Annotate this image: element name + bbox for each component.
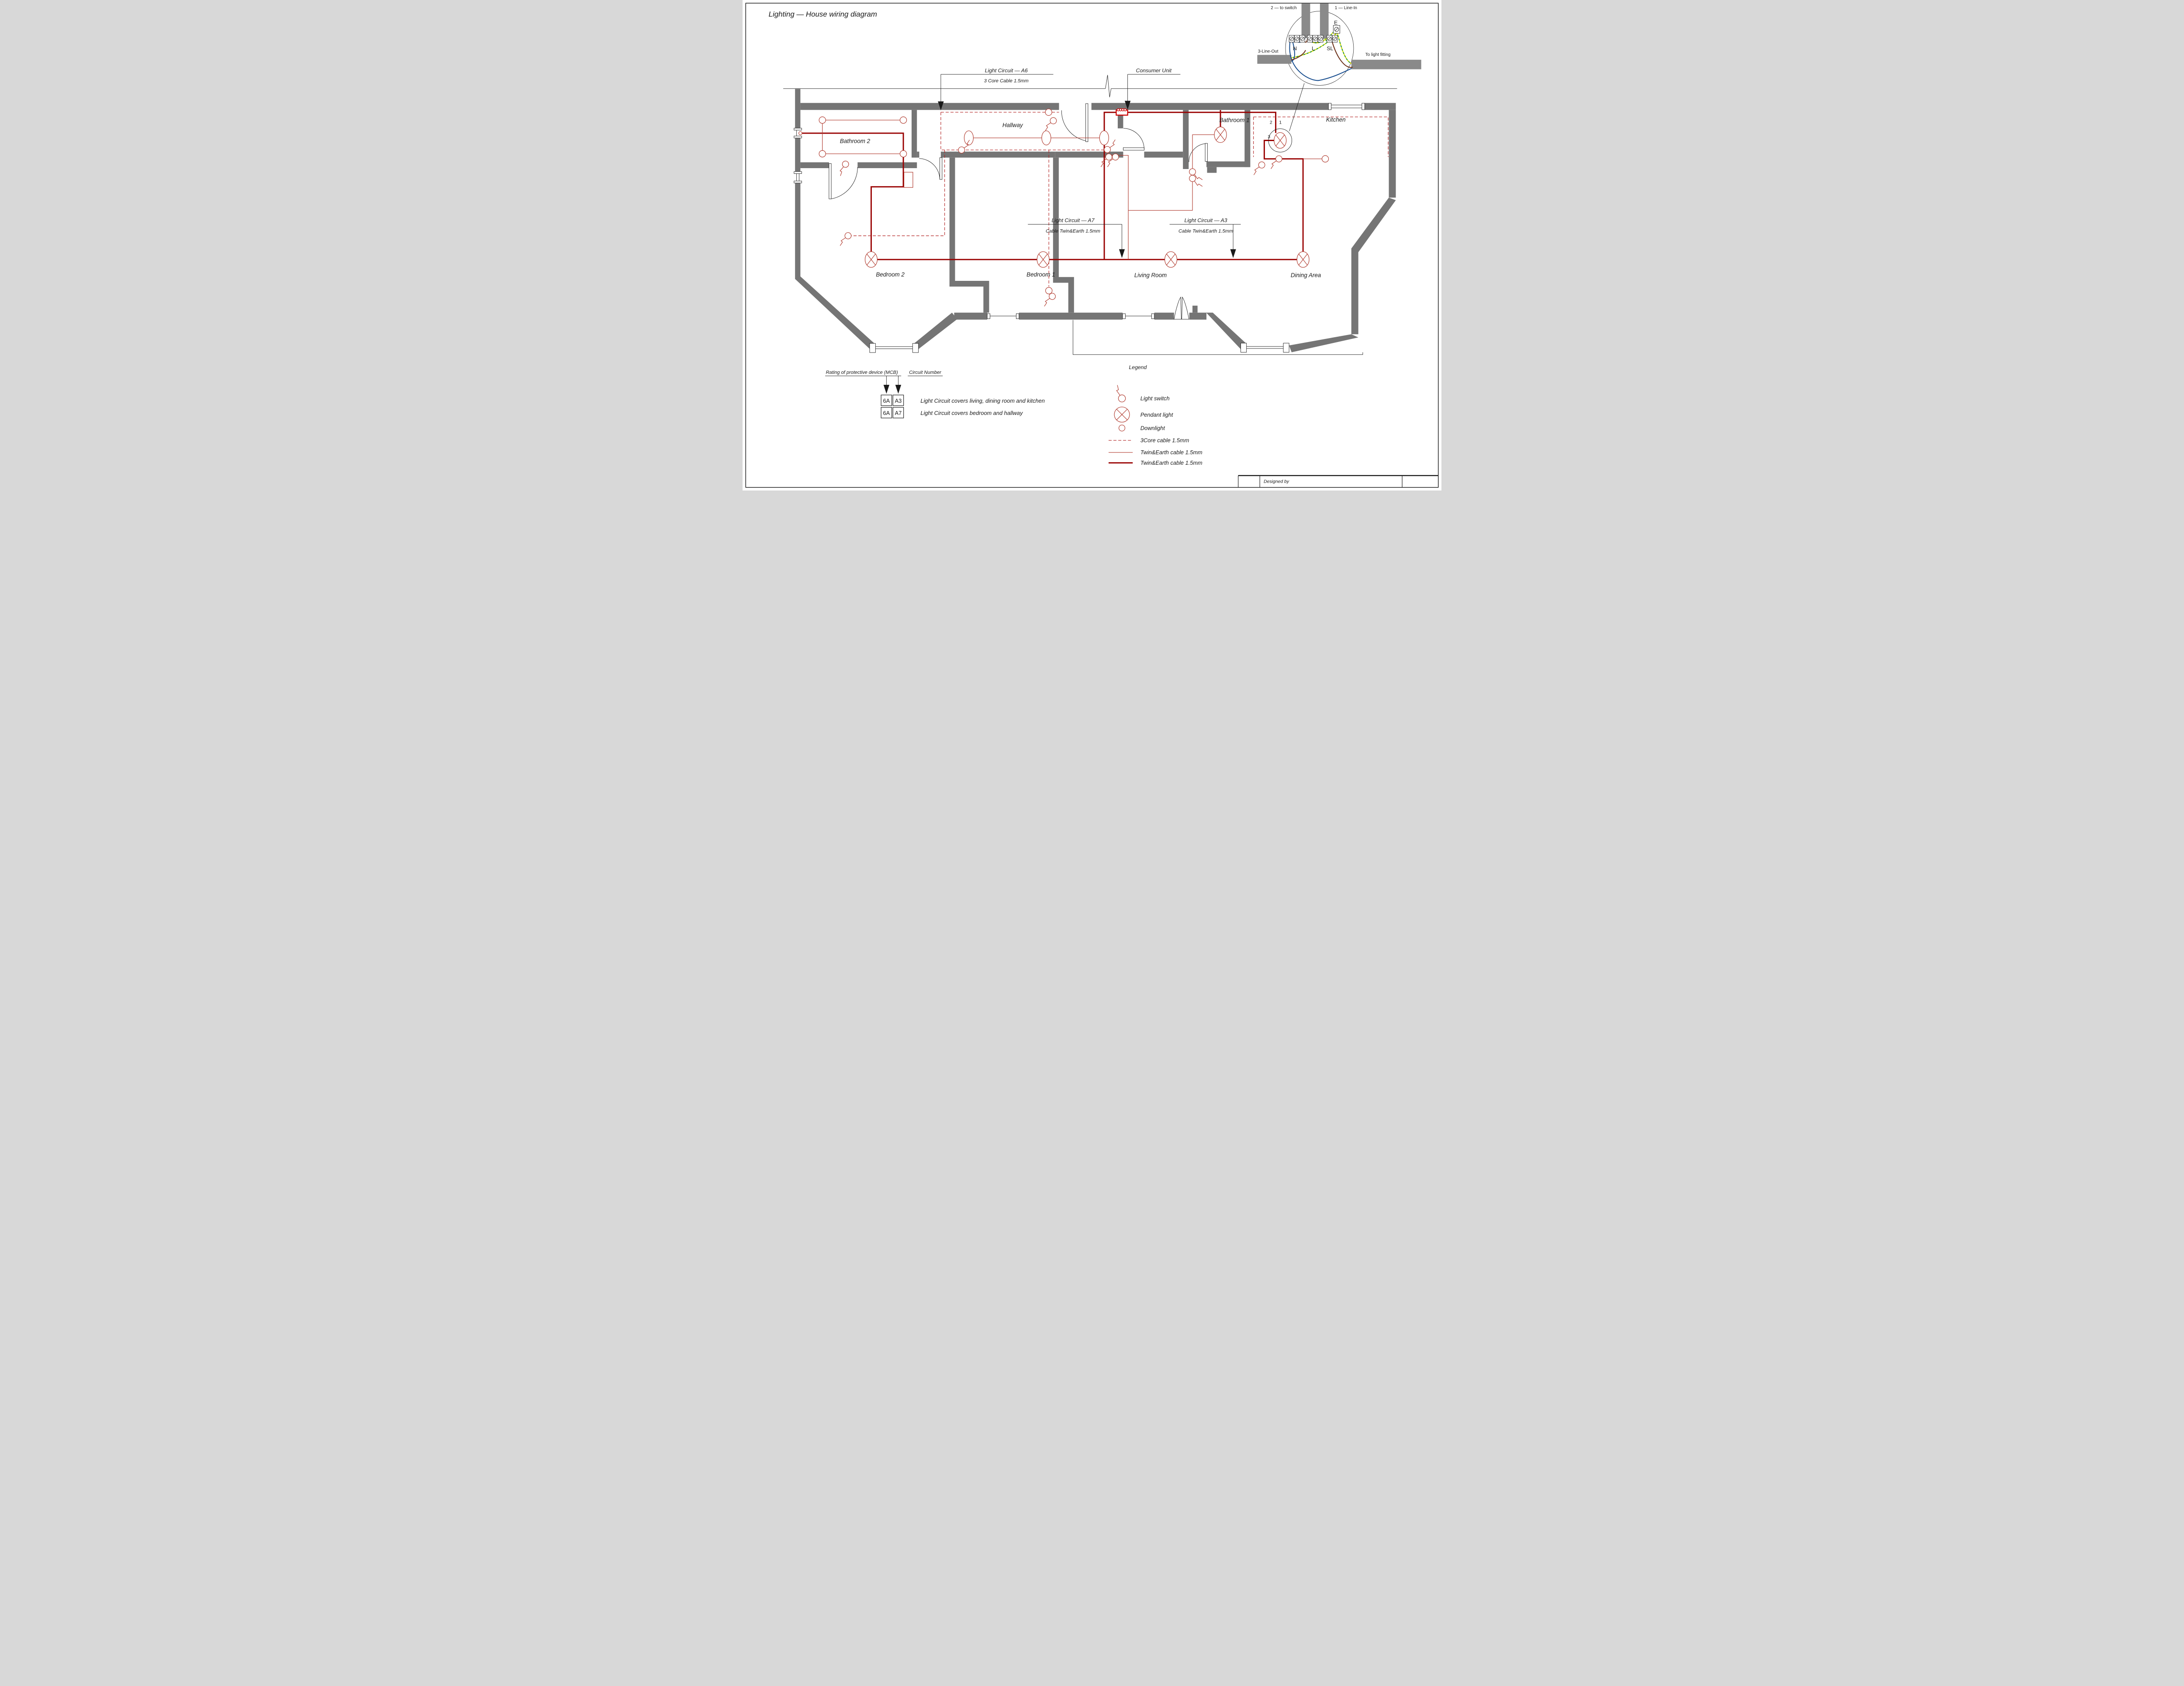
pendant-symbol — [865, 252, 877, 267]
downlight-symbol — [900, 150, 907, 157]
room-label-livingroom: Living Room — [1134, 272, 1167, 278]
terminal-screw — [1300, 35, 1305, 42]
terminal-screw — [1332, 35, 1337, 42]
mcb-row1-circuit: A3 — [895, 397, 902, 404]
rose-terminal-e-label: E — [1334, 20, 1337, 26]
rose-terminal-sl-label: SL — [1327, 45, 1333, 52]
a3-line2: Cable Twin&Earth 1.5mm — [1178, 228, 1233, 234]
pendant-symbol — [1297, 252, 1309, 267]
diagram-canvas: Lighting — House wiring diagram — [743, 0, 1441, 491]
pendant-symbol — [1274, 132, 1286, 148]
rose-label-to-switch: 2 — to switch — [1271, 6, 1296, 10]
patio-outline — [1073, 320, 1363, 355]
terminal-screw — [1294, 35, 1299, 42]
terminal-screw — [1289, 35, 1294, 42]
room-label-bathroom2: Bathroom 2 — [840, 138, 871, 144]
downlight-symbol — [1045, 109, 1052, 115]
room-label-kitchen: Kitchen — [1326, 117, 1346, 123]
annotation-consumer-unit: Consumer Unit — [1128, 67, 1181, 109]
feeddot-symbol — [799, 131, 802, 135]
kitchen-terminal-1: 1 — [1279, 121, 1282, 125]
mcb-heading-rating: Rating of protective device (MCB) — [826, 370, 898, 375]
page-title: Lighting — House wiring diagram — [769, 10, 877, 18]
halllight-symbol — [1042, 131, 1051, 145]
walls — [795, 89, 1396, 352]
switch-symbol — [1253, 160, 1266, 177]
switch-symbol — [840, 161, 849, 176]
downlight-symbol — [900, 117, 907, 123]
a6-line1: Light Circuit — A6 — [985, 67, 1028, 73]
legend-label-twin-earth-thick: Twin&Earth cable 1.5mm — [1140, 460, 1203, 466]
room-label-bedroom1: Bedroom 1 — [1026, 271, 1055, 278]
legend-symbol-light-switch — [1116, 385, 1125, 402]
downlight-symbol — [1046, 287, 1052, 294]
switch-symbol — [1188, 174, 1205, 187]
switch-symbol — [840, 231, 852, 248]
room-label-bathroom1: Bathroom 1 — [1219, 117, 1249, 123]
legend-label-light-switch: Light switch — [1140, 395, 1170, 402]
a7-line1: Light Circuit — A7 — [1051, 218, 1095, 224]
kitchen-terminal-2: 2 — [1270, 121, 1272, 125]
switch-symbol — [1044, 292, 1056, 309]
mcb-heading-circuit: Circuit Number — [909, 370, 942, 375]
wiring-twin-earth-thick — [800, 110, 1303, 259]
halllight-symbol — [964, 131, 973, 145]
downlight-symbol — [819, 150, 826, 157]
annotation-a7: Light Circuit — A7 Cable Twin&Earth 1.5m… — [1028, 218, 1122, 257]
rose-terminal-l-label: L — [1312, 45, 1315, 52]
mcb-note: Rating of protective device (MCB) Circui… — [825, 370, 1045, 418]
consumer-unit-label: Consumer Unit — [1136, 67, 1172, 73]
downlight-symbol — [1322, 155, 1328, 162]
a7-line2: Cable Twin&Earth 1.5mm — [1046, 228, 1100, 234]
switch-symbol — [1270, 154, 1283, 171]
mcb-row1-rating: 6A — [883, 397, 890, 404]
rose-label-line-in: 1 — Line-In — [1335, 6, 1357, 10]
title-block: Designed by — [1238, 476, 1438, 487]
doors — [829, 104, 1207, 319]
mcb-row2-description: Light Circuit covers bedroom and hallway — [920, 410, 1023, 416]
downlight-symbol — [819, 117, 826, 123]
a3-line1: Light Circuit — A3 — [1185, 218, 1227, 224]
room-label-hallway: Hallway — [1002, 122, 1023, 128]
terminal-screw — [1307, 35, 1313, 42]
ceiling-rose-detail: 2 — to switch 1 — Line-In 3-Line-Out To … — [1257, 3, 1421, 152]
annotation-a3: Light Circuit — A3 Cable Twin&Earth 1.5m… — [1170, 218, 1241, 257]
rose-label-line-out: 3-Line-Out — [1258, 49, 1279, 54]
mcb-row2-circuit: A7 — [895, 410, 902, 416]
legend-title: Legend — [1129, 364, 1147, 370]
pendant-symbol — [1165, 252, 1177, 267]
rose-label-to-light: To light fitting — [1365, 52, 1391, 57]
wiring-diagram-page: Lighting — House wiring diagram — [743, 0, 1441, 491]
mcb-row2-rating: 6A — [883, 410, 890, 416]
a6-line2: 3 Core Cable 1.5mm — [984, 79, 1029, 84]
rose-terminal-n-label: N — [1293, 45, 1297, 52]
pendant-symbol — [1214, 127, 1227, 142]
legend-label-downlight: Downlight — [1140, 425, 1165, 431]
terminal-screw — [1327, 35, 1332, 42]
room-label-bedroom2: Bedroom 2 — [876, 271, 905, 278]
legend-symbol-downlight — [1119, 425, 1125, 431]
pendant-symbol — [1037, 252, 1049, 267]
legend-label-twin-earth-thin: Twin&Earth cable 1.5mm — [1140, 449, 1203, 456]
designed-by-label: Designed by — [1264, 480, 1289, 484]
terminal-screw — [1313, 35, 1318, 42]
legend-label-pendant-light: Pendant light — [1140, 411, 1173, 418]
legend: Legend Light switch Pendant light Downli… — [1109, 364, 1203, 466]
halllight-symbol — [1099, 131, 1109, 145]
consumer-unit — [1116, 109, 1127, 115]
legend-symbol-pendant-light — [1114, 407, 1130, 422]
room-label-diningarea: Dining Area — [1291, 272, 1321, 278]
legend-label-3core-cable: 3Core cable 1.5mm — [1140, 437, 1189, 444]
mcb-row1-description: Light Circuit covers living, dining room… — [920, 397, 1045, 404]
terminal-screw — [1318, 35, 1323, 42]
